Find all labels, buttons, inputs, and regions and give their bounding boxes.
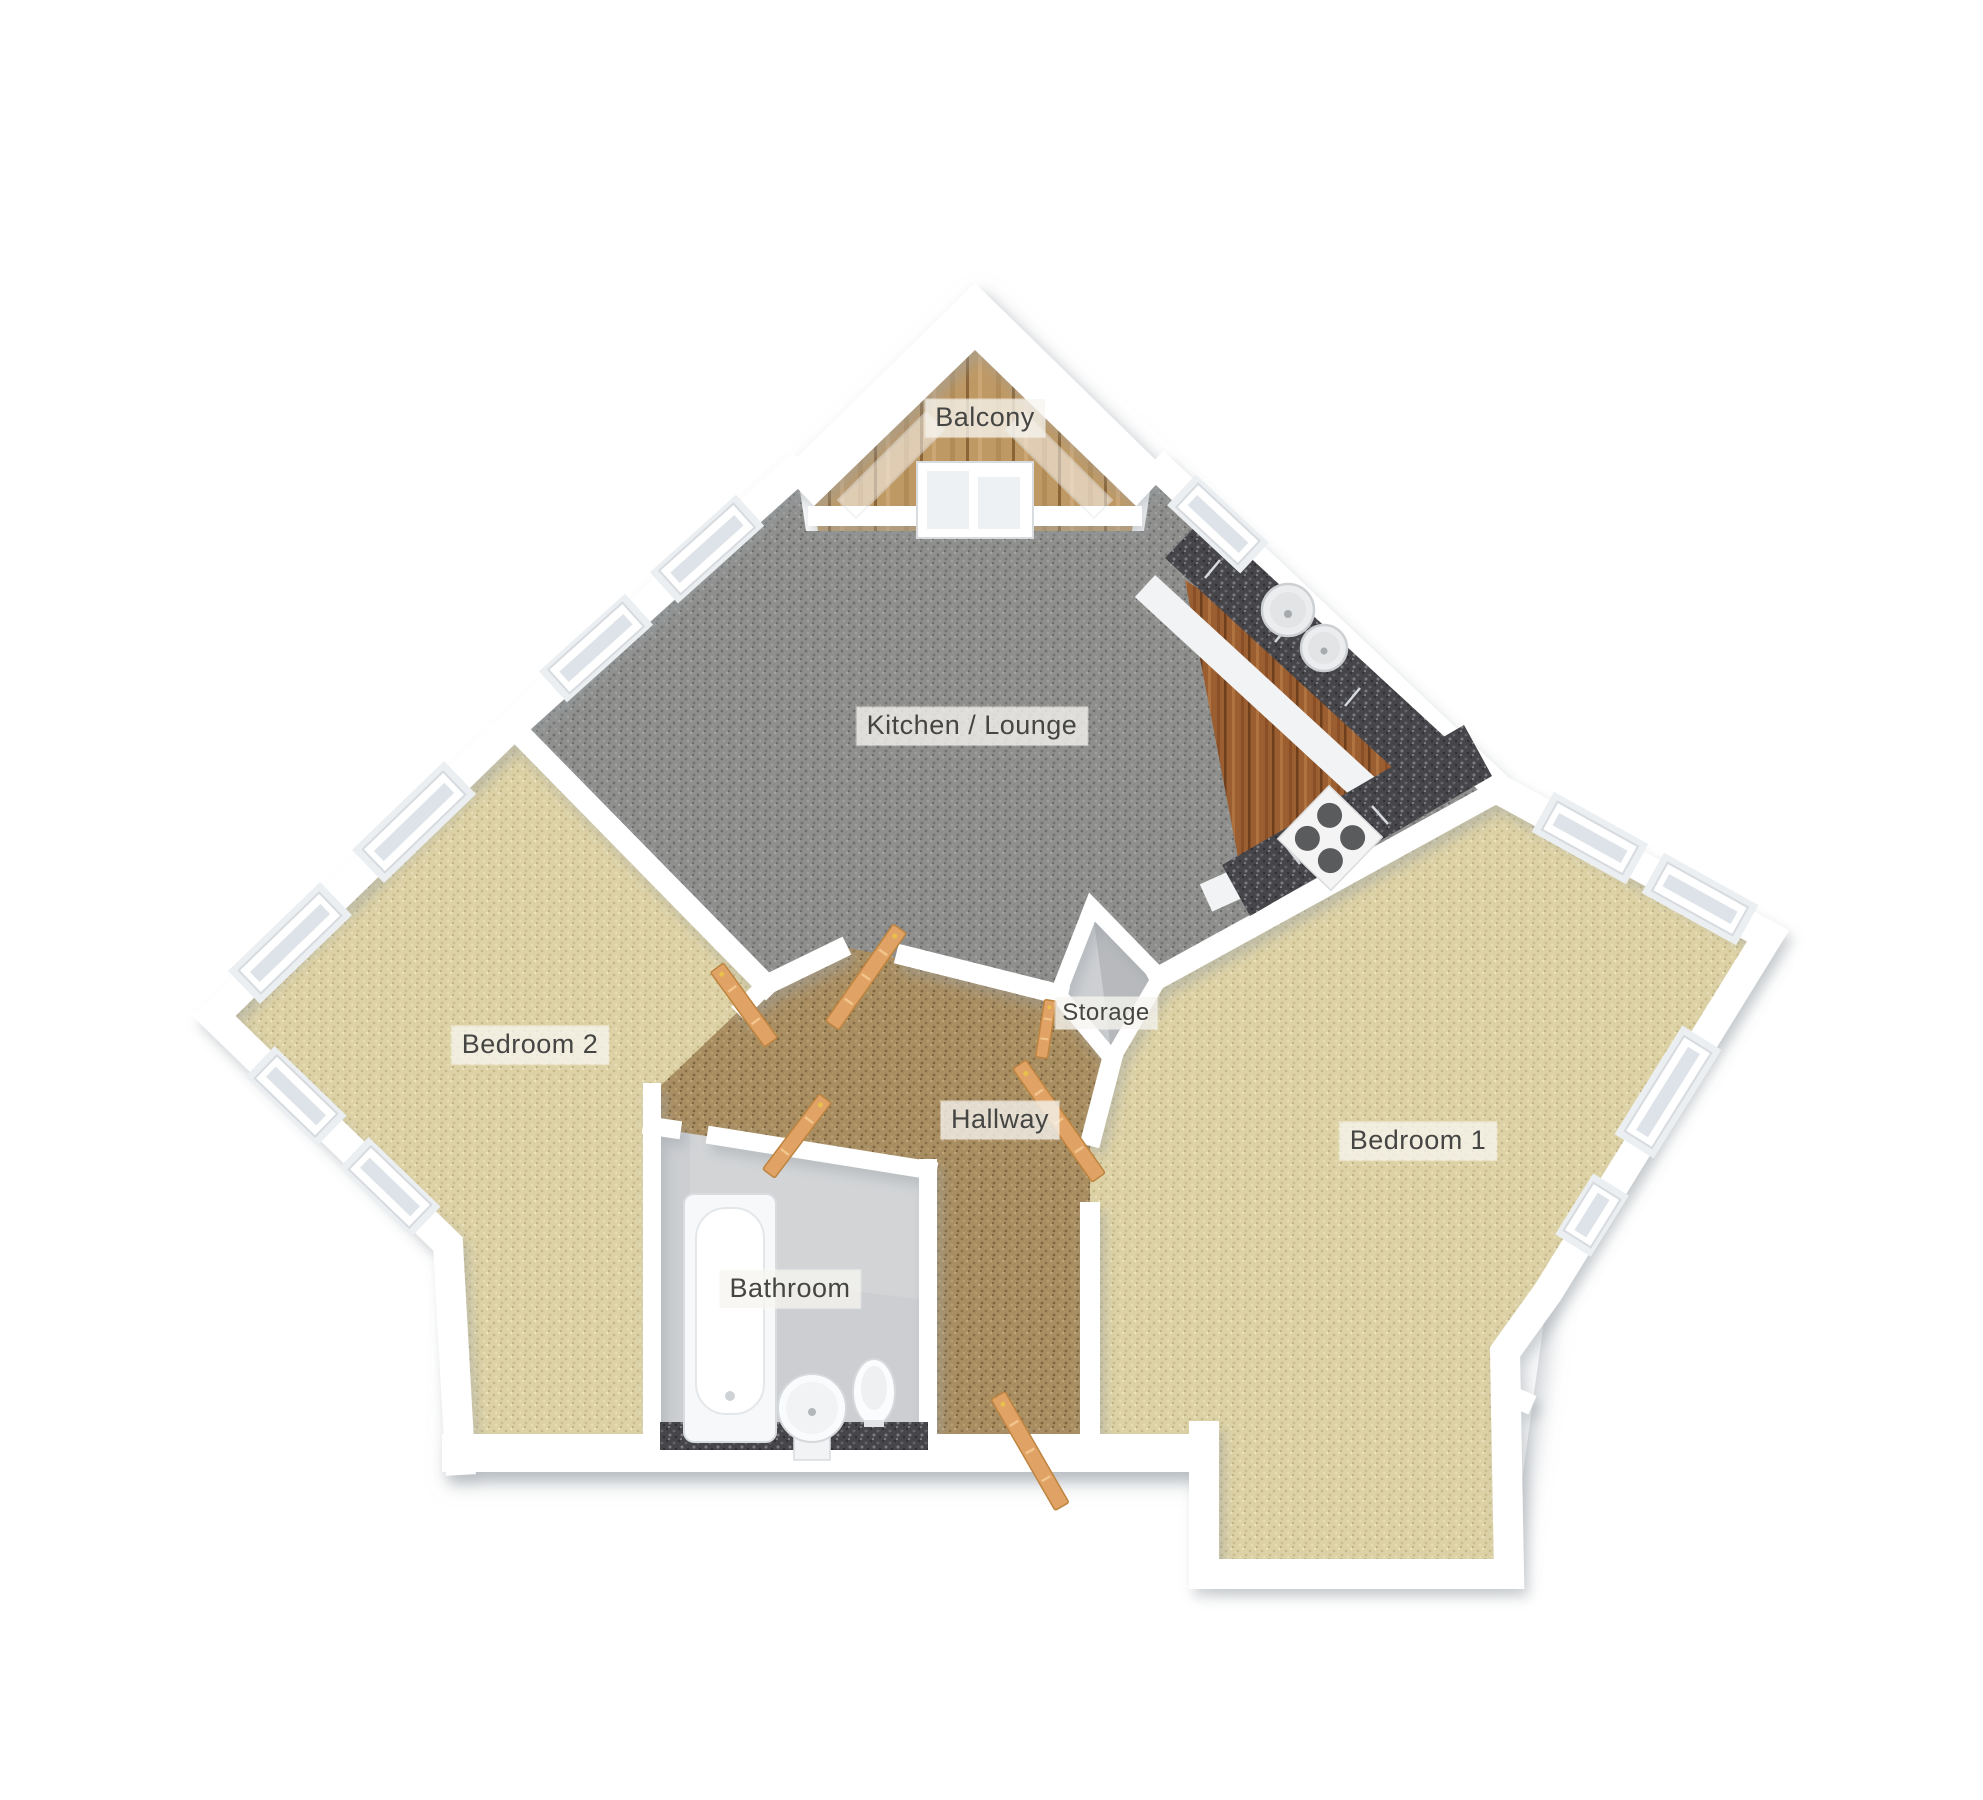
- room-label-balcony: Balcony: [925, 399, 1045, 437]
- room-label-bedroom-1: Bedroom 1: [1340, 1122, 1497, 1160]
- room-label-bathroom: Bathroom: [719, 1270, 860, 1308]
- bathtub: [684, 1194, 776, 1442]
- floorplan-page: Balcony Kitchen / Lounge Storage Hallway…: [0, 0, 1983, 1800]
- room-label-kitchen-lounge: Kitchen / Lounge: [857, 707, 1088, 745]
- floorplan-canvas: [0, 0, 1983, 1800]
- balcony-sliding-door: [917, 462, 1033, 538]
- room-label-hallway: Hallway: [941, 1101, 1059, 1139]
- room-label-bedroom-2: Bedroom 2: [452, 1026, 609, 1064]
- room-label-storage: Storage: [1055, 997, 1157, 1029]
- toilet: [853, 1359, 895, 1427]
